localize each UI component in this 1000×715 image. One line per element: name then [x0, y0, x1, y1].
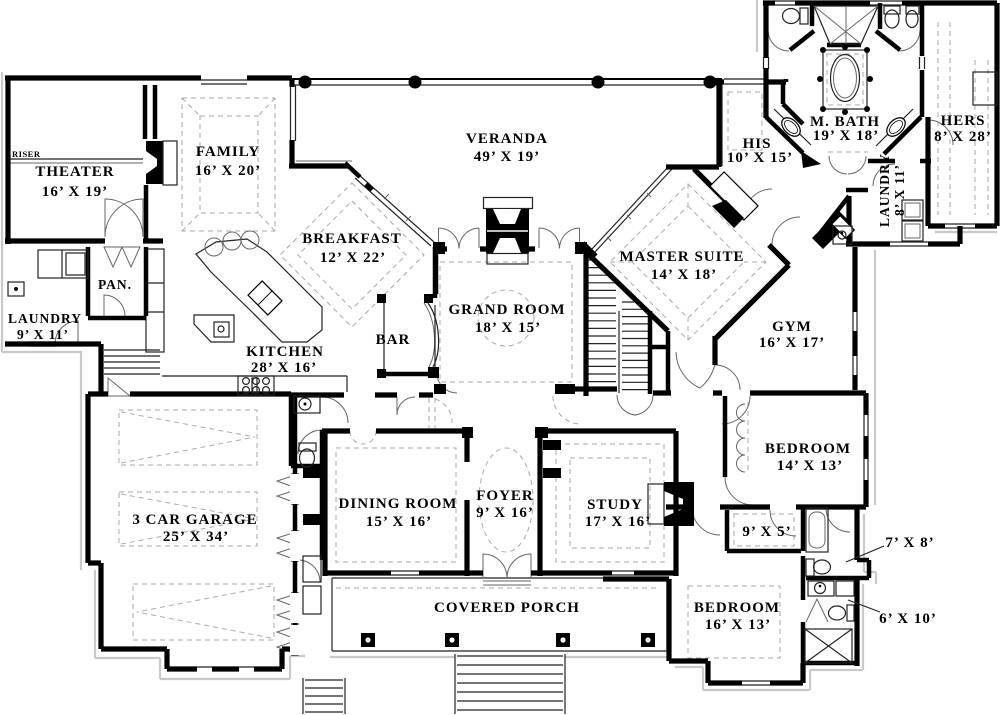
svg-text:FAMILY: FAMILY: [196, 144, 260, 160]
svg-text:18’ X 15’: 18’ X 15’: [475, 320, 541, 336]
svg-text:10’ X 15’: 10’ X 15’: [727, 150, 793, 166]
svg-text:14’ X 13’: 14’ X 13’: [777, 458, 843, 474]
svg-text:MASTER SUITE: MASTER SUITE: [620, 249, 745, 265]
svg-text:6’ X 10’: 6’ X 10’: [879, 611, 937, 627]
svg-text:DINING ROOM: DINING ROOM: [339, 496, 458, 512]
svg-text:3 CAR GARAGE: 3 CAR GARAGE: [132, 512, 257, 528]
svg-text:VERANDA: VERANDA: [466, 131, 548, 147]
svg-text:9’ X 16’: 9’ X 16’: [476, 505, 534, 521]
svg-text:KITCHEN: KITCHEN: [246, 344, 324, 360]
svg-text:15’ X 16’: 15’ X 16’: [366, 514, 432, 530]
svg-text:COVERED PORCH: COVERED PORCH: [434, 600, 580, 616]
svg-text:8’ X 28’: 8’ X 28’: [934, 129, 992, 145]
svg-text:12’ X 22’: 12’ X 22’: [320, 250, 386, 266]
svg-text:BEDROOM: BEDROOM: [694, 600, 780, 616]
svg-text:14’ X 18’: 14’ X 18’: [651, 267, 717, 283]
svg-text:BEDROOM: BEDROOM: [765, 441, 851, 457]
svg-text:9’ X 5’: 9’ X 5’: [742, 524, 791, 540]
svg-text:9’ X 11’: 9’ X 11’: [17, 327, 69, 342]
svg-text:GRAND ROOM: GRAND ROOM: [448, 302, 565, 318]
svg-text:7’ X 8’: 7’ X 8’: [885, 535, 934, 551]
svg-text:FOYER: FOYER: [476, 488, 534, 504]
svg-text:25’ X 34’: 25’ X 34’: [163, 529, 229, 545]
svg-text:STUDY: STUDY: [587, 497, 643, 513]
svg-text:HERS: HERS: [941, 113, 986, 129]
svg-text:BAR: BAR: [376, 332, 411, 348]
svg-text:19’ X 18’: 19’ X 18’: [813, 128, 879, 144]
svg-text:PAN.: PAN.: [98, 277, 132, 292]
svg-text:LAUNDRY: LAUNDRY: [8, 311, 82, 326]
svg-text:49’ X 19’: 49’ X 19’: [474, 149, 540, 165]
svg-text:17’ X 16’: 17’ X 16’: [585, 514, 651, 530]
svg-text:GYM: GYM: [772, 319, 812, 335]
svg-text:THEATER: THEATER: [35, 164, 114, 180]
svg-text:8’ X 11’: 8’ X 11’: [892, 164, 907, 216]
svg-text:16’ X 17’: 16’ X 17’: [759, 335, 825, 351]
svg-text:16’ X 13’: 16’ X 13’: [705, 617, 771, 633]
svg-text:16’ X 19’: 16’ X 19’: [42, 184, 108, 200]
svg-text:LAUNDRY: LAUNDRY: [877, 153, 892, 227]
svg-text:16’ X 20’: 16’ X 20’: [195, 163, 261, 179]
svg-text:BREAKFAST: BREAKFAST: [302, 231, 402, 247]
svg-text:28’ X 16’: 28’ X 16’: [251, 360, 317, 376]
svg-text:RISER: RISER: [12, 149, 41, 159]
